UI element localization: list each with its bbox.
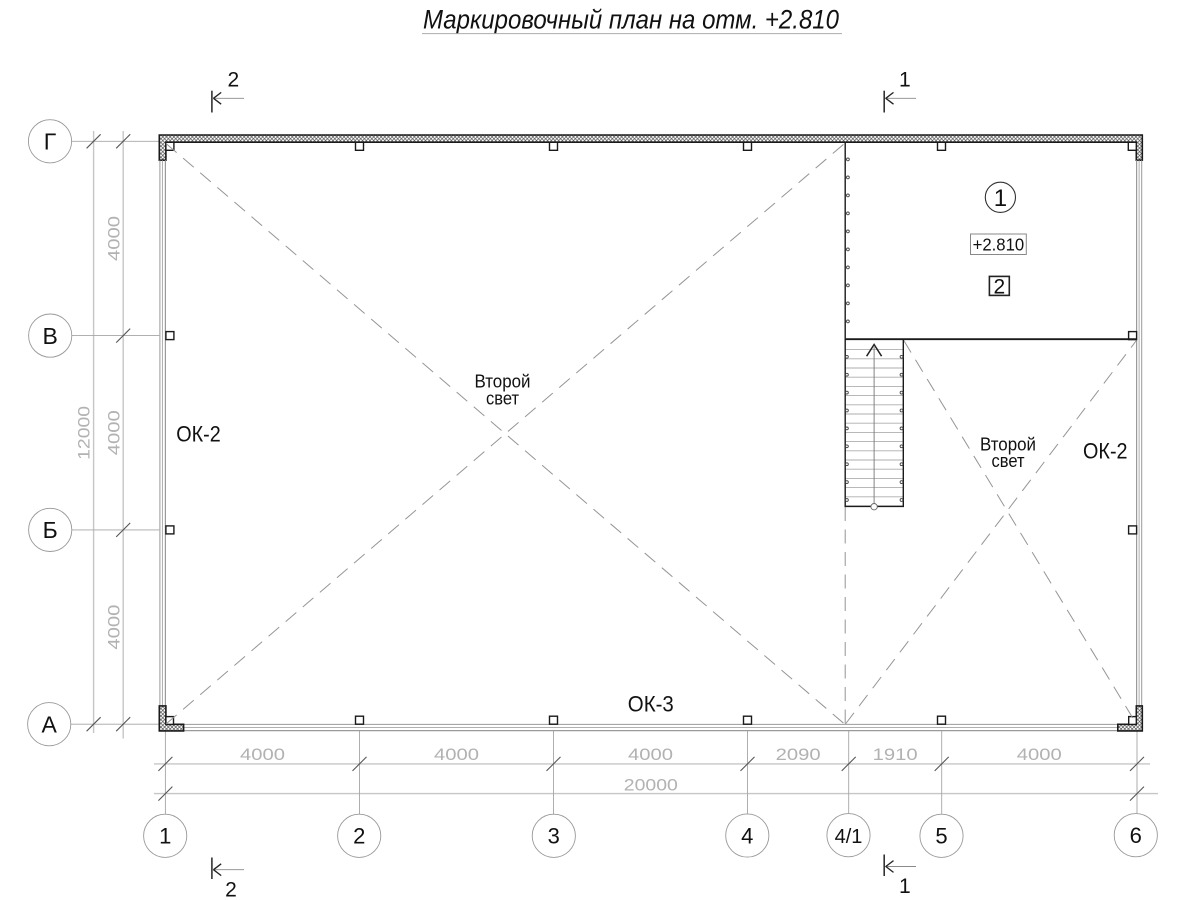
svg-text:+2.810: +2.810: [973, 234, 1025, 254]
svg-text:4000: 4000: [105, 216, 124, 261]
svg-text:20000: 20000: [624, 776, 678, 795]
svg-text:ОК-2: ОК-2: [1083, 438, 1128, 463]
svg-text:4000: 4000: [434, 745, 479, 764]
svg-text:Б: Б: [43, 517, 58, 543]
svg-text:ОК-3: ОК-3: [628, 692, 674, 717]
svg-text:4: 4: [741, 823, 753, 848]
svg-text:4000: 4000: [1017, 745, 1062, 764]
svg-text:2: 2: [225, 879, 237, 900]
svg-text:В: В: [43, 323, 58, 349]
svg-text:А: А: [42, 711, 58, 737]
svg-text:1: 1: [899, 69, 911, 92]
svg-text:1: 1: [159, 824, 171, 849]
svg-text:свет: свет: [486, 388, 519, 409]
svg-text:2: 2: [994, 275, 1006, 298]
svg-text:2: 2: [227, 69, 239, 92]
svg-text:4000: 4000: [105, 410, 124, 455]
svg-text:2: 2: [353, 824, 365, 849]
svg-text:5: 5: [935, 824, 947, 849]
svg-text:4/1: 4/1: [835, 826, 863, 848]
svg-text:4000: 4000: [240, 745, 285, 764]
svg-text:3: 3: [548, 824, 560, 849]
svg-text:Маркировочный план на отм. +2.: Маркировочный план на отм. +2.810: [423, 4, 839, 34]
svg-text:2090: 2090: [776, 745, 821, 764]
svg-text:4000: 4000: [105, 605, 124, 650]
svg-text:свет: свет: [992, 450, 1025, 471]
svg-text:1: 1: [899, 875, 911, 898]
svg-text:1910: 1910: [873, 745, 918, 764]
svg-text:12000: 12000: [75, 406, 94, 460]
svg-text:ОК-2: ОК-2: [176, 421, 221, 446]
svg-text:6: 6: [1130, 823, 1142, 848]
svg-text:1: 1: [994, 185, 1007, 212]
svg-text:Г: Г: [44, 129, 57, 155]
svg-text:4000: 4000: [628, 745, 673, 764]
